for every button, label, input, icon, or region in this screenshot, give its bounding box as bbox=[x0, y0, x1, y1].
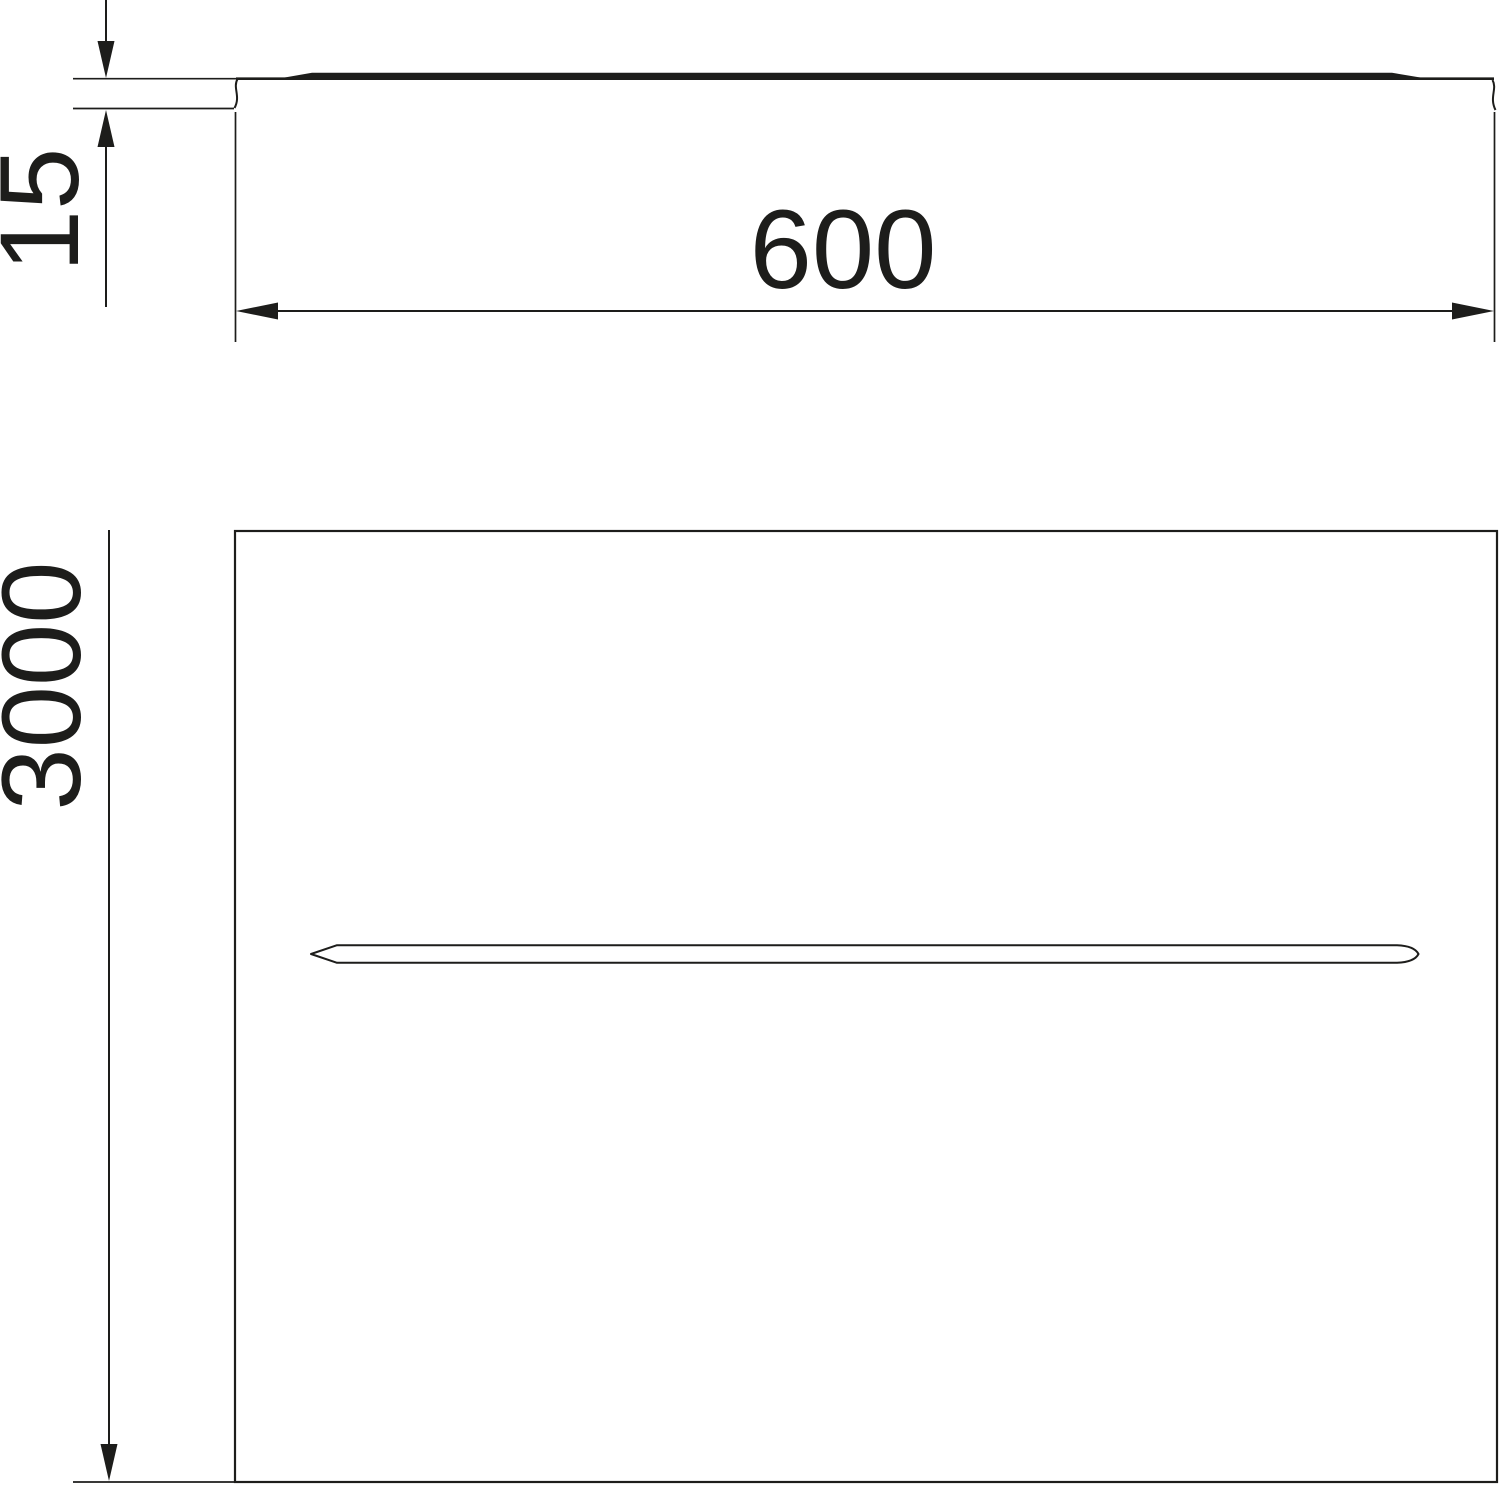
cover-left-edge-curl bbox=[235, 79, 238, 108]
side-profile-view bbox=[235, 73, 1496, 110]
plan-view bbox=[235, 531, 1497, 1482]
dim3000-arrow-down-icon bbox=[101, 1444, 118, 1481]
cover-rib-outline bbox=[311, 945, 1419, 963]
dimension-length-3000: 3000 bbox=[0, 530, 235, 1482]
technical-drawing-canvas: 15 600 bbox=[0, 0, 1500, 1485]
dimension-width-600: 600 bbox=[236, 112, 1495, 342]
dim15-arrow-up-icon bbox=[98, 110, 115, 147]
technical-drawing-page: 15 600 bbox=[0, 0, 1500, 1485]
cover-outline-rect bbox=[235, 531, 1497, 1482]
cover-right-edge-curl bbox=[1493, 80, 1496, 110]
dim600-arrow-left-icon bbox=[236, 303, 278, 320]
dim3000-label: 3000 bbox=[0, 561, 104, 810]
dimension-height-15: 15 bbox=[0, 0, 236, 307]
cover-bead-band bbox=[284, 73, 1421, 80]
dim600-label: 600 bbox=[750, 187, 937, 312]
dim600-arrow-right-icon bbox=[1452, 303, 1494, 320]
dim15-arrow-down-icon bbox=[98, 41, 115, 78]
dim15-label: 15 bbox=[0, 148, 102, 273]
